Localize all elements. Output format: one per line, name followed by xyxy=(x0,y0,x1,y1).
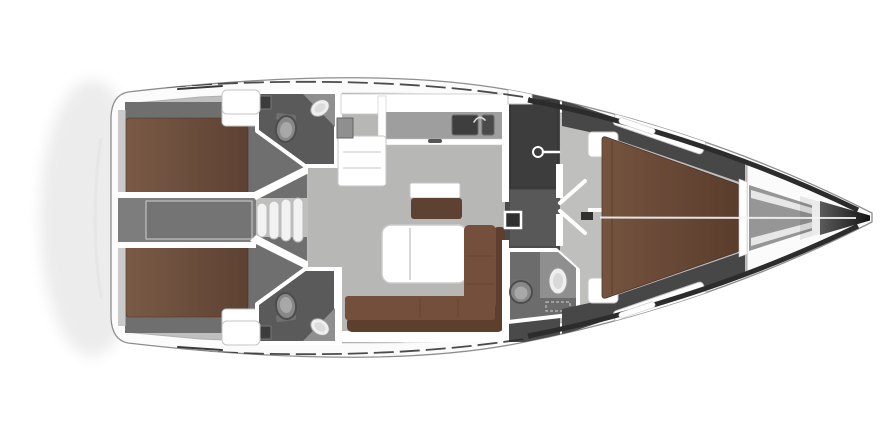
deck-hatch-bottom xyxy=(222,321,260,345)
saloon-bulkhead-top xyxy=(502,94,509,202)
aft-port-double-bed xyxy=(126,118,248,194)
centerline xyxy=(600,218,856,219)
engine-wall-bottom xyxy=(116,242,256,248)
forward-head-toilet xyxy=(510,279,532,303)
galley-wall-west xyxy=(378,96,386,142)
galley-sink xyxy=(452,115,478,135)
engine-box xyxy=(146,201,252,239)
saloon-shelf xyxy=(410,183,460,198)
galley-handle xyxy=(428,139,442,143)
floor-plan-canvas xyxy=(0,0,890,446)
galley-l-counter xyxy=(338,136,386,186)
saloon-table xyxy=(382,225,467,283)
galley-cabinet xyxy=(337,118,353,138)
corridor-top-locker-2 xyxy=(532,70,566,99)
fwd-bulkhead-bottom xyxy=(556,214,563,246)
aft-starboard-double-bed xyxy=(126,241,248,317)
fwd-bulkhead-top xyxy=(556,164,563,198)
hanging-locker xyxy=(510,100,558,188)
stern-locker-starboard xyxy=(118,242,126,326)
step-4 xyxy=(293,198,303,242)
step-1 xyxy=(257,203,267,237)
saloon-bench-seat xyxy=(411,198,462,219)
interior xyxy=(116,70,872,355)
deck-hatch-top xyxy=(222,90,260,114)
galley-top-cabinets xyxy=(341,94,505,114)
electrical-panel xyxy=(505,212,521,228)
saloon-hull-wall-bottom xyxy=(341,331,507,342)
stern-locker-port xyxy=(118,110,126,194)
galley-counter-edge xyxy=(380,139,506,145)
yacht-floor-plan xyxy=(0,0,890,446)
forward-head-washbasin-bowl xyxy=(553,273,563,289)
entry-step-shadow xyxy=(581,212,593,220)
engine-wall-top xyxy=(116,192,256,198)
aft-head-starboard-wall-east xyxy=(335,267,342,345)
step-2 xyxy=(269,201,279,239)
step-3 xyxy=(281,199,291,241)
